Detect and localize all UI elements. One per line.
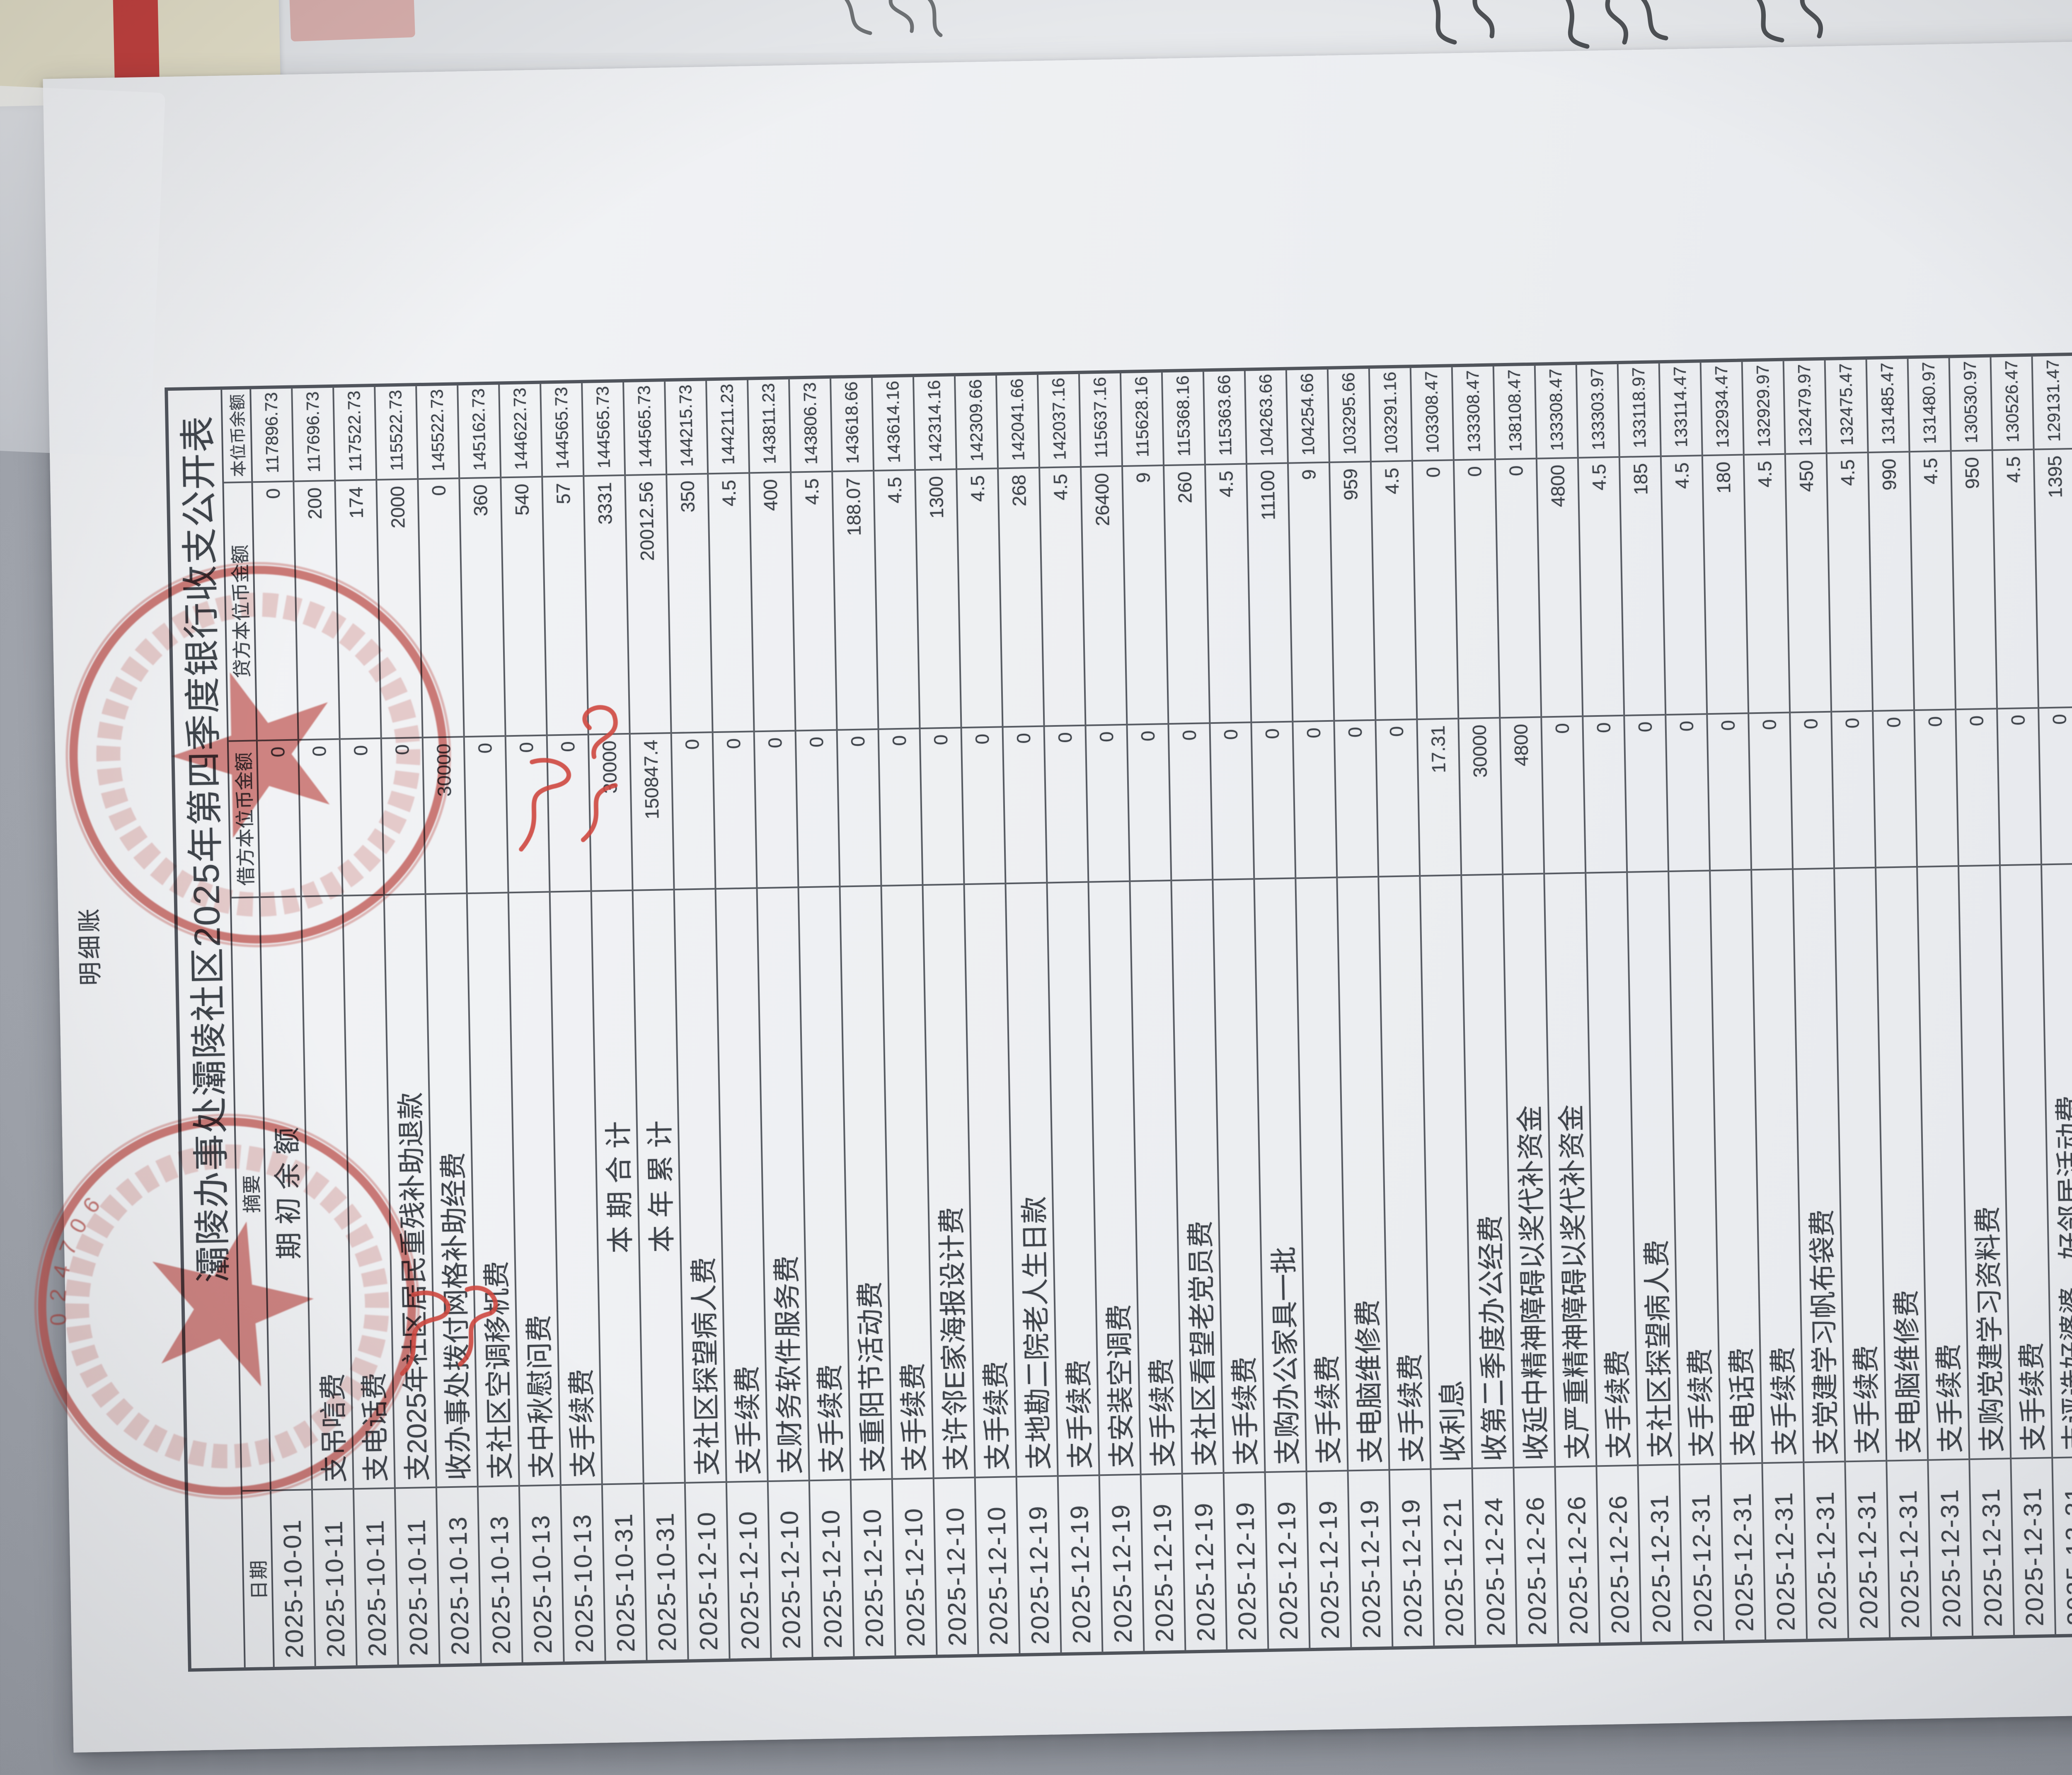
row-balance: 145522.73 [417,385,458,478]
row-credit: 950 [1952,449,1996,708]
row-credit: 4.5 [957,467,1002,726]
row-balance: 132929.97 [1743,361,1784,454]
row-date: 2025-12-19 [1390,1468,1433,1647]
row-date: 2025-12-31 [1763,1461,1806,1640]
row-date: 2025-12-24 [1473,1467,1516,1645]
row-debit: 0 [796,729,839,886]
row-balance: 115368.16 [1163,372,1204,464]
row-balance: 103295.66 [1329,369,1370,462]
row-credit: 959 [1330,461,1375,720]
row-balance: 144565.73 [624,382,666,474]
row-date: 2025-12-10 [810,1479,853,1657]
row-debit: 0 [1998,707,2041,864]
row-balance: 133308.47 [1536,365,1577,458]
row-date: 2025-12-31 [1887,1459,1930,1637]
row-balance: 117522.73 [334,387,375,480]
row-date: 2025-12-31 [1804,1461,1847,1639]
row-debit: 0 [2039,706,2072,863]
row-date: 2025-12-19 [1348,1469,1392,1647]
row-balance: 132934.47 [1702,362,1743,455]
row-balance: 115637.16 [1080,373,1121,466]
row-credit: 1395 [2035,448,2072,707]
row-credit: 180 [1703,454,1748,713]
row-debit: 0 [1625,714,1668,871]
row-balance: 115628.16 [1121,372,1163,465]
row-date: 2025-12-21 [1431,1468,1474,1646]
row-debit: 0 [879,728,922,885]
row-date: 2025-12-31 [1639,1464,1682,1642]
row-credit: 400 [750,472,794,730]
row-debit: 0 [1128,723,1170,880]
row-balance: 115522.73 [375,386,417,479]
row-balance: 143806.73 [790,379,831,472]
row-balance: 131480.97 [1909,358,1950,451]
row-balance: 130526.47 [1992,357,2033,450]
row-date: 2025-12-19 [1307,1470,1351,1648]
row-credit: 4.5 [792,471,836,730]
row-credit: 4.5 [1745,453,1789,712]
row-date: 2025-12-19 [1142,1473,1185,1651]
row-debit: 0 [714,730,756,888]
row-credit: 26400 [1082,465,1126,724]
row-debit: 0 [1749,711,1792,869]
row-balance: 115363.66 [1204,371,1246,464]
row-credit: 4.5 [709,472,753,731]
row-date: 2025-12-26 [1514,1466,1557,1644]
row-date: 2025-12-10 [893,1478,936,1656]
row-debit: 0 [1791,711,1833,868]
row-credit: 350 [667,473,712,732]
official-red-seal-upper [56,552,461,957]
row-debit: 0 [1708,712,1750,870]
row-debit: 0 [962,726,1005,883]
row-balance: 133114.47 [1660,363,1702,455]
row-credit: 4800 [1537,457,1582,716]
row-debit: 0 [1956,708,1999,865]
row-balance: 104254.66 [1287,370,1329,462]
black-handwriting-top-small [837,0,945,44]
row-date: 2025-12-31 [1846,1460,1889,1638]
row-credit: 185 [1620,455,1665,714]
row-balance: 143811.23 [748,380,790,472]
row-date: 2025-10-13 [562,1484,605,1662]
row-date: 2025-12-10 [727,1480,770,1659]
row-credit: 4.5 [1579,456,1623,715]
row-credit: 4.5 [1910,450,1955,709]
row-balance: 133303.97 [1577,364,1619,457]
row-balance: 145162.73 [458,385,500,478]
row-debit: 0 [1915,709,1958,866]
row-date: 2025-10-31 [644,1482,687,1660]
row-debit: 0 [838,728,881,886]
red-stripe-decoration [113,0,160,83]
row-balance: 143614.16 [873,377,914,470]
row-date: 2025-12-10 [976,1476,1019,1654]
row-debit: 0 [1542,715,1585,873]
row-credit: 260 [1164,464,1209,723]
row-credit: 1300 [916,468,960,727]
row-debit: 0 [672,731,715,889]
ledger-paper-sheet: 灞陵办事处灞陵社区2025年第四季度银行收支公开表 日期 摘要 借方本位币金额 … [43,37,2072,1753]
row-balance: 144565.73 [541,383,583,476]
row-credit: 4.5 [874,469,919,728]
row-credit: 4.5 [1828,452,1872,711]
row-balance: 132475.47 [1826,360,1867,452]
row-balance: 117896.73 [251,389,293,481]
row-balance: 142037.16 [1038,374,1080,467]
row-balance: 133308.47 [1453,367,1494,459]
row-debit: 0 [1086,724,1129,881]
row-debit: 0 [1169,722,1212,880]
row-date: 2025-12-31 [2053,1456,2072,1635]
row-balance: 133118.97 [1619,363,1660,456]
col-header-date: 日期 [242,1490,273,1667]
row-debit: 0 [920,727,963,884]
table-body: 2025-10-01期 初 余 额00117896.732025-10-11支吊… [251,353,2072,1667]
row-date: 2025-10-13 [479,1485,522,1663]
row-date: 2025-10-11 [313,1488,356,1666]
row-balance: 144565.73 [583,382,624,475]
row-balance: 142314.16 [914,376,956,469]
row-date: 2025-12-31 [1970,1458,2013,1636]
row-credit: 0 [1496,458,1540,717]
row-date: 2025-12-19 [1100,1474,1143,1652]
row-date: 2025-12-26 [1556,1465,1599,1644]
row-date: 2025-10-13 [437,1486,480,1664]
row-balance: 144215.73 [666,381,707,474]
row-date: 2025-10-01 [271,1489,315,1667]
row-balance: 132479.97 [1784,360,1826,453]
row-date: 2025-12-19 [1059,1475,1102,1653]
official-red-seal-lower: 024706 [24,1104,429,1509]
row-date: 2025-12-31 [1721,1462,1765,1640]
row-debit: 17.31 [1418,718,1460,875]
row-credit: 4.5 [1206,463,1250,722]
row-credit: 9 [1123,464,1167,723]
row-debit: 0 [1874,709,1916,867]
row-date: 2025-10-13 [520,1484,563,1662]
row-balance: 143618.66 [831,378,873,471]
row-debit: 0 [1376,718,1419,876]
row-credit: 0 [1413,459,1457,718]
row-debit: 0 [1210,721,1253,879]
row-credit: 990 [1869,451,1913,710]
row-balance: 117696.73 [293,388,334,481]
row-debit: 0 [1666,713,1709,871]
row-date: 2025-12-10 [769,1480,812,1658]
red-handwriting-lower [379,1231,515,1399]
row-date: 2025-12-19 [1225,1471,1268,1649]
row-debit: 0 [1832,710,1875,868]
red-handwriting-upper [494,689,646,875]
row-debit: 0 [1335,719,1377,877]
row-balance: 104263.66 [1246,370,1287,463]
row-date: 2025-12-31 [2011,1457,2055,1635]
row-debit: 0 [1583,715,1626,872]
row-date: 2025-10-11 [354,1487,397,1666]
row-debit: 4800 [1501,716,1543,873]
row-date: 2025-12-19 [1017,1475,1060,1653]
row-credit: 11100 [1247,462,1292,721]
glossy-plastic-strip [0,85,165,457]
row-credit: 450 [1786,452,1830,711]
row-balance: 103308.47 [1411,367,1453,460]
row-date: 2025-12-19 [1183,1472,1226,1650]
row-balance: 131485.47 [1867,359,1909,452]
row-debit: 0 [1252,721,1295,878]
pink-paper-edge [289,0,415,41]
row-balance: 142309.66 [956,376,997,469]
row-balance: 130530.97 [1950,358,1992,450]
row-date: 2025-12-10 [852,1478,895,1657]
row-date: 2025-12-31 [1929,1458,1972,1637]
row-date: 2025-12-31 [1680,1463,1723,1641]
row-balance: 144622.73 [500,384,541,477]
col-header-balance: 本位币余额 [222,389,251,482]
row-credit: 9 [1289,462,1333,721]
row-date: 2025-10-31 [603,1483,646,1661]
row-date: 2025-12-10 [686,1481,729,1659]
document-page: 灞陵办事处灞陵社区2025年第四季度银行收支公开表 日期 摘要 借方本位币金额 … [165,352,2072,1672]
row-credit: 4.5 [1993,449,2038,708]
desk-photo: { "document": { "title": "灞陵办事处灞陵社区2025年… [0,0,2072,1775]
row-date: 2025-10-11 [396,1487,439,1665]
row-date: 2025-12-26 [1597,1465,1640,1643]
row-credit: 4.5 [1662,455,1706,713]
row-date: 2025-12-19 [1266,1470,1309,1649]
row-credit: 4.5 [1372,460,1416,719]
row-credit: 268 [999,467,1043,726]
row-debit: 0 [1003,725,1046,883]
row-balance: 103291.16 [1370,368,1411,461]
row-date: 2025-12-10 [934,1477,978,1655]
row-balance: 138108.47 [1494,366,1536,459]
row-debit: 30000 [1459,717,1502,874]
row-balance: 144211.23 [707,380,748,473]
row-credit: 0 [1455,458,1499,717]
row-balance: 142041.66 [997,375,1038,468]
row-credit: 4.5 [1040,466,1084,725]
table-frame: 灞陵办事处灞陵社区2025年第四季度银行收支公开表 日期 摘要 借方本位币金额 … [165,352,2072,1672]
row-balance: 129131.47 [2033,356,2072,449]
row-debit: 0 [1045,724,1087,882]
row-debit: 0 [755,730,798,887]
row-credit: 188.07 [833,470,877,729]
row-debit: 0 [1293,720,1336,877]
